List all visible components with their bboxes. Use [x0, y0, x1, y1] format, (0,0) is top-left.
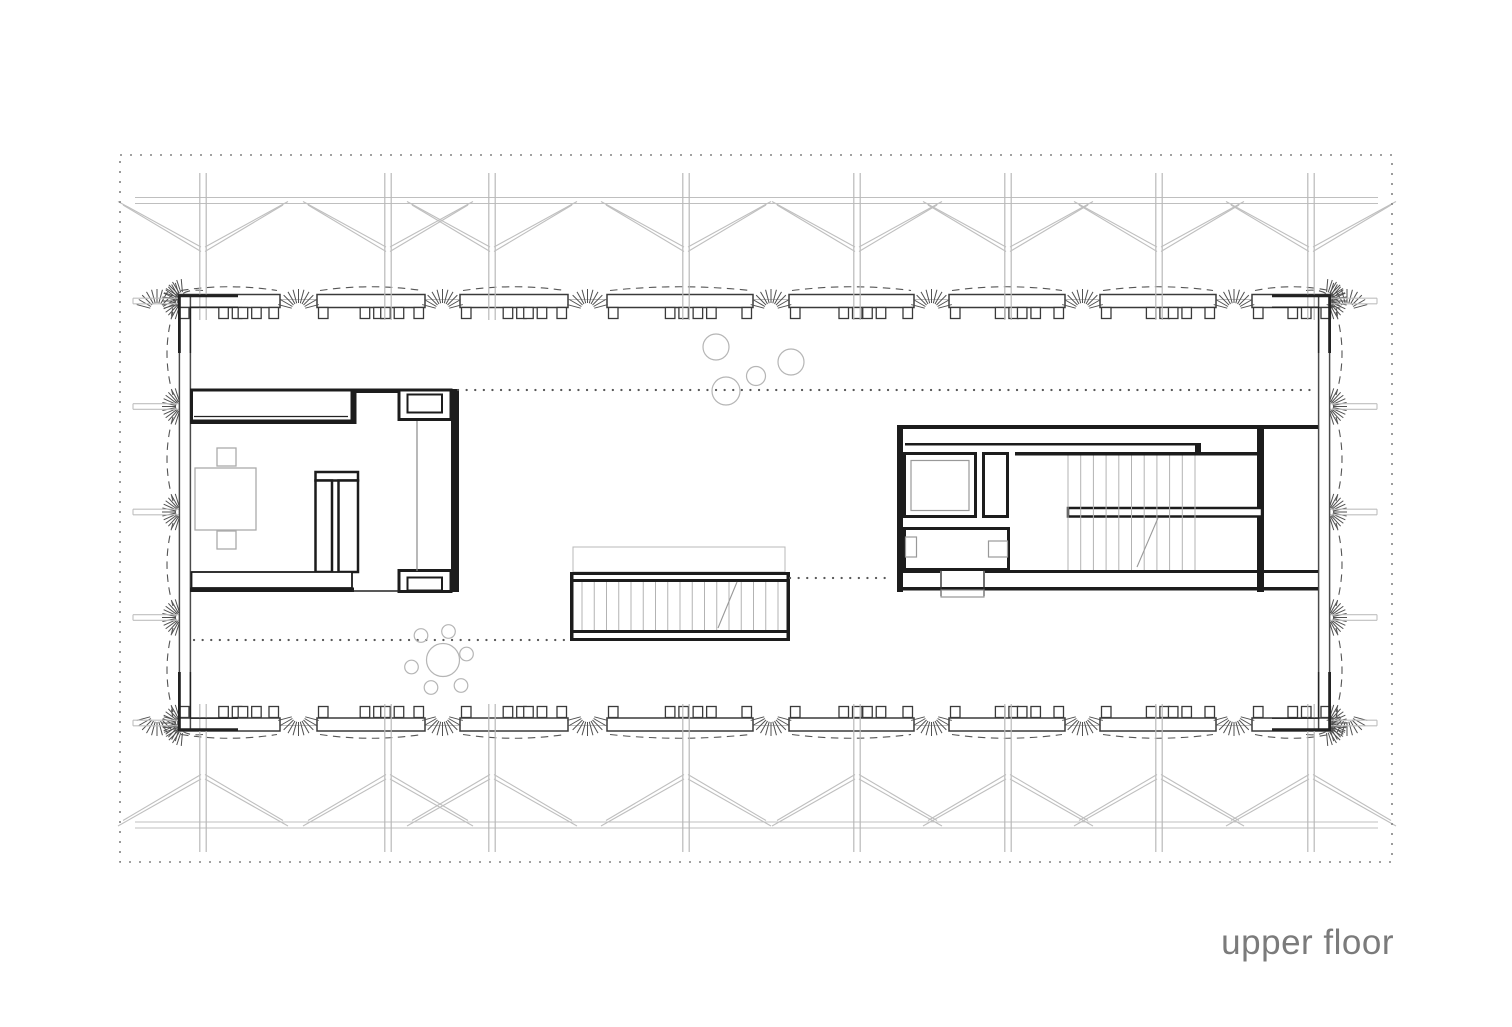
drawing-title: upper floor [1221, 923, 1394, 963]
right-room-block [897, 425, 1318, 597]
left-room-block [190, 389, 459, 593]
floor-plan-page: upper floor [0, 0, 1512, 1027]
floor-plan-drawing [0, 0, 1512, 1027]
central-stair [570, 547, 790, 641]
